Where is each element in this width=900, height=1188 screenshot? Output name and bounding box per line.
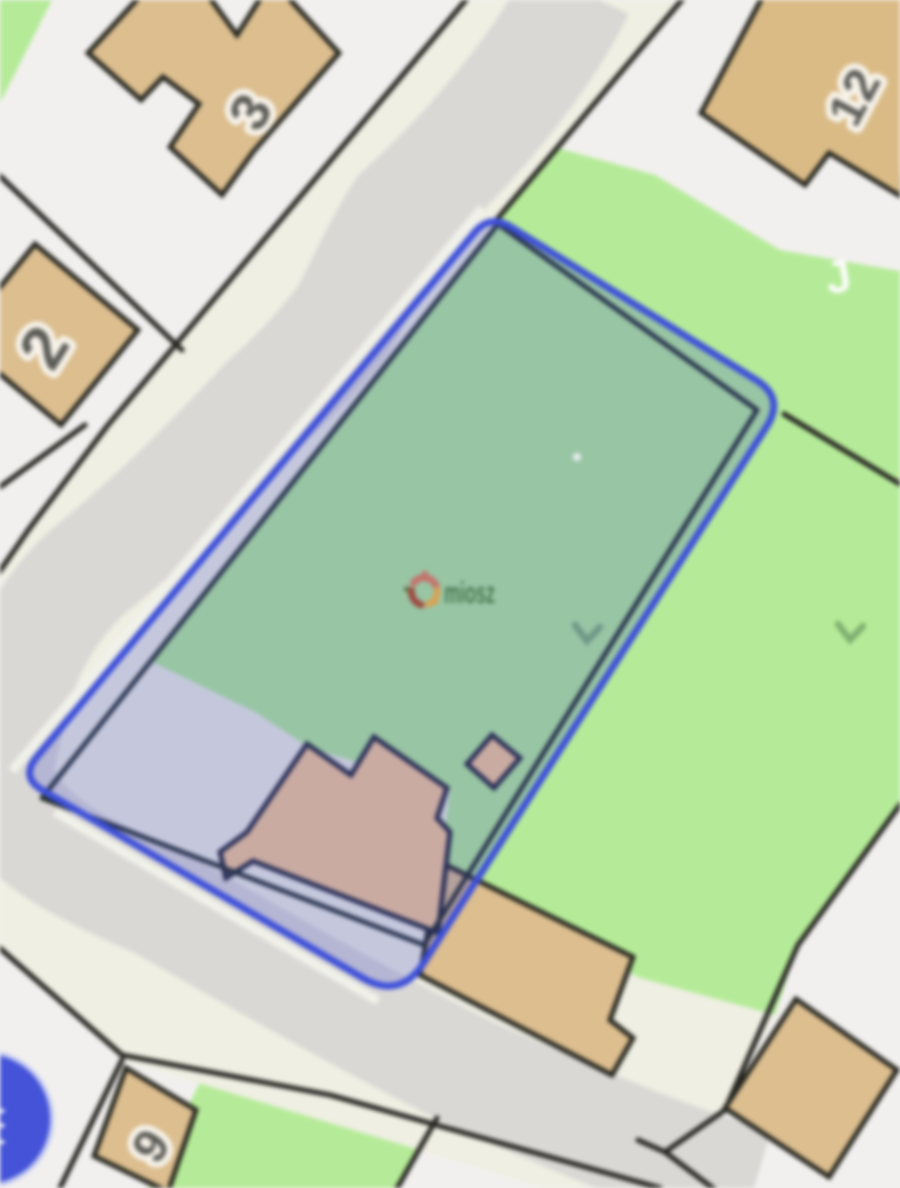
svg-text:miosz: miosz [444,576,495,610]
